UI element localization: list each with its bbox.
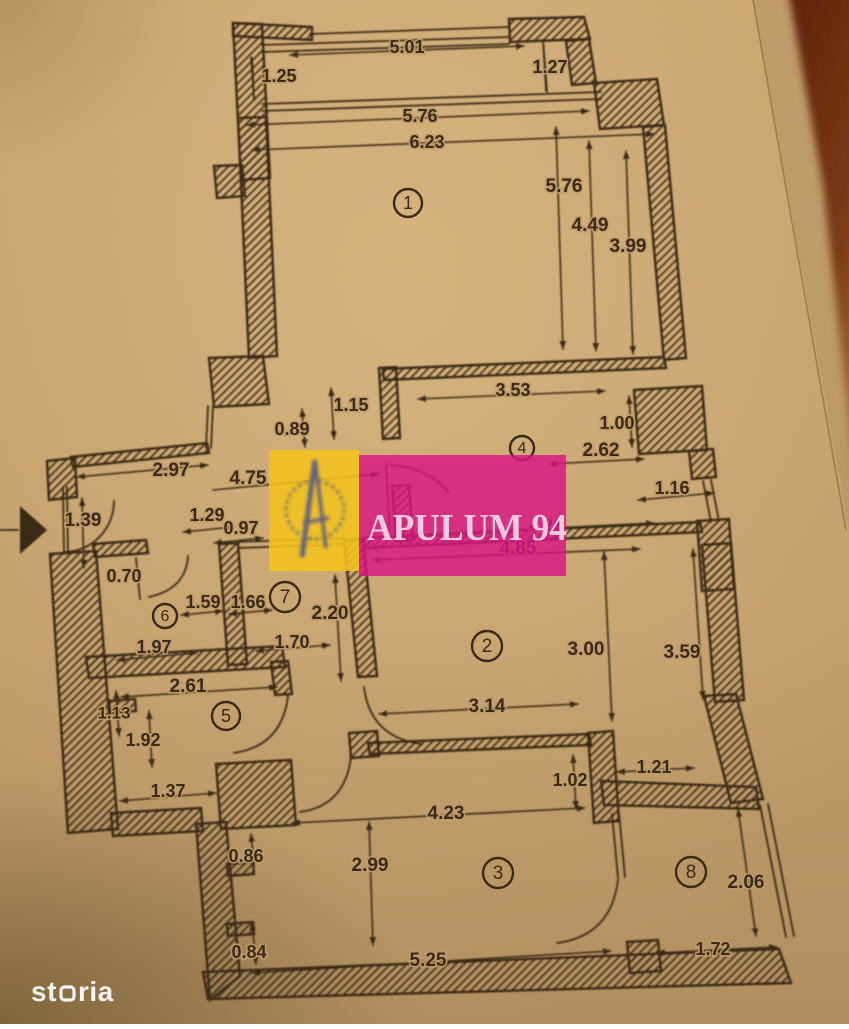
svg-text:1.72: 1.72 bbox=[695, 939, 730, 959]
svg-text:2.06: 2.06 bbox=[728, 872, 765, 893]
svg-text:1.13: 1.13 bbox=[97, 703, 130, 722]
svg-text:3.14: 3.14 bbox=[469, 696, 506, 717]
svg-text:5.76: 5.76 bbox=[546, 176, 583, 197]
svg-text:5: 5 bbox=[221, 706, 231, 726]
svg-text:2.61: 2.61 bbox=[170, 676, 207, 697]
svg-text:0.89: 0.89 bbox=[274, 419, 309, 439]
svg-text:8: 8 bbox=[686, 862, 697, 883]
svg-text:4.49: 4.49 bbox=[572, 215, 609, 236]
svg-text:0.97: 0.97 bbox=[223, 518, 258, 538]
svg-text:1.66: 1.66 bbox=[230, 592, 265, 612]
svg-text:1.39: 1.39 bbox=[65, 510, 102, 531]
svg-text:3.99: 3.99 bbox=[610, 236, 647, 257]
svg-text:3: 3 bbox=[493, 863, 504, 884]
svg-text:1.16: 1.16 bbox=[654, 478, 689, 498]
svg-text:2.62: 2.62 bbox=[583, 440, 620, 461]
svg-text:APULUM 94: APULUM 94 bbox=[367, 507, 567, 549]
svg-text:1.25: 1.25 bbox=[261, 66, 296, 86]
svg-text:3.59: 3.59 bbox=[664, 642, 701, 663]
svg-text:2.97: 2.97 bbox=[153, 460, 190, 481]
svg-text:4.23: 4.23 bbox=[428, 803, 465, 824]
svg-text:2: 2 bbox=[482, 636, 493, 657]
svg-text:0.70: 0.70 bbox=[106, 566, 141, 586]
svg-text:4: 4 bbox=[518, 440, 527, 457]
svg-text:6.23: 6.23 bbox=[409, 132, 444, 152]
svg-text:ria: ria bbox=[78, 976, 114, 1007]
svg-text:1.29: 1.29 bbox=[189, 505, 224, 525]
svg-text:1.97: 1.97 bbox=[136, 637, 171, 657]
svg-text:1.15: 1.15 bbox=[333, 395, 368, 415]
svg-text:0.84: 0.84 bbox=[231, 942, 266, 962]
svg-text:2.99: 2.99 bbox=[352, 855, 389, 876]
svg-text:1.59: 1.59 bbox=[185, 592, 220, 612]
svg-text:5.25: 5.25 bbox=[410, 950, 447, 971]
svg-text:4.75: 4.75 bbox=[230, 468, 267, 489]
svg-text:1.27: 1.27 bbox=[532, 57, 567, 77]
svg-text:1.00: 1.00 bbox=[599, 413, 634, 433]
svg-text:1.70: 1.70 bbox=[274, 632, 309, 652]
svg-text:3.00: 3.00 bbox=[568, 639, 605, 660]
svg-text:1: 1 bbox=[403, 193, 413, 213]
svg-text:6: 6 bbox=[161, 608, 170, 625]
svg-text:1.37: 1.37 bbox=[150, 781, 185, 801]
svg-text:7: 7 bbox=[280, 587, 291, 608]
svg-text:2.20: 2.20 bbox=[312, 603, 349, 624]
svg-text:st: st bbox=[31, 976, 57, 1007]
svg-text:3.53: 3.53 bbox=[495, 380, 530, 400]
svg-text:1.92: 1.92 bbox=[125, 730, 160, 750]
svg-text:5.76: 5.76 bbox=[402, 106, 437, 126]
svg-text:1.21: 1.21 bbox=[636, 757, 671, 777]
svg-text:5.01: 5.01 bbox=[389, 37, 424, 57]
svg-text:1.02: 1.02 bbox=[552, 770, 587, 790]
svg-text:0.86: 0.86 bbox=[228, 846, 263, 866]
